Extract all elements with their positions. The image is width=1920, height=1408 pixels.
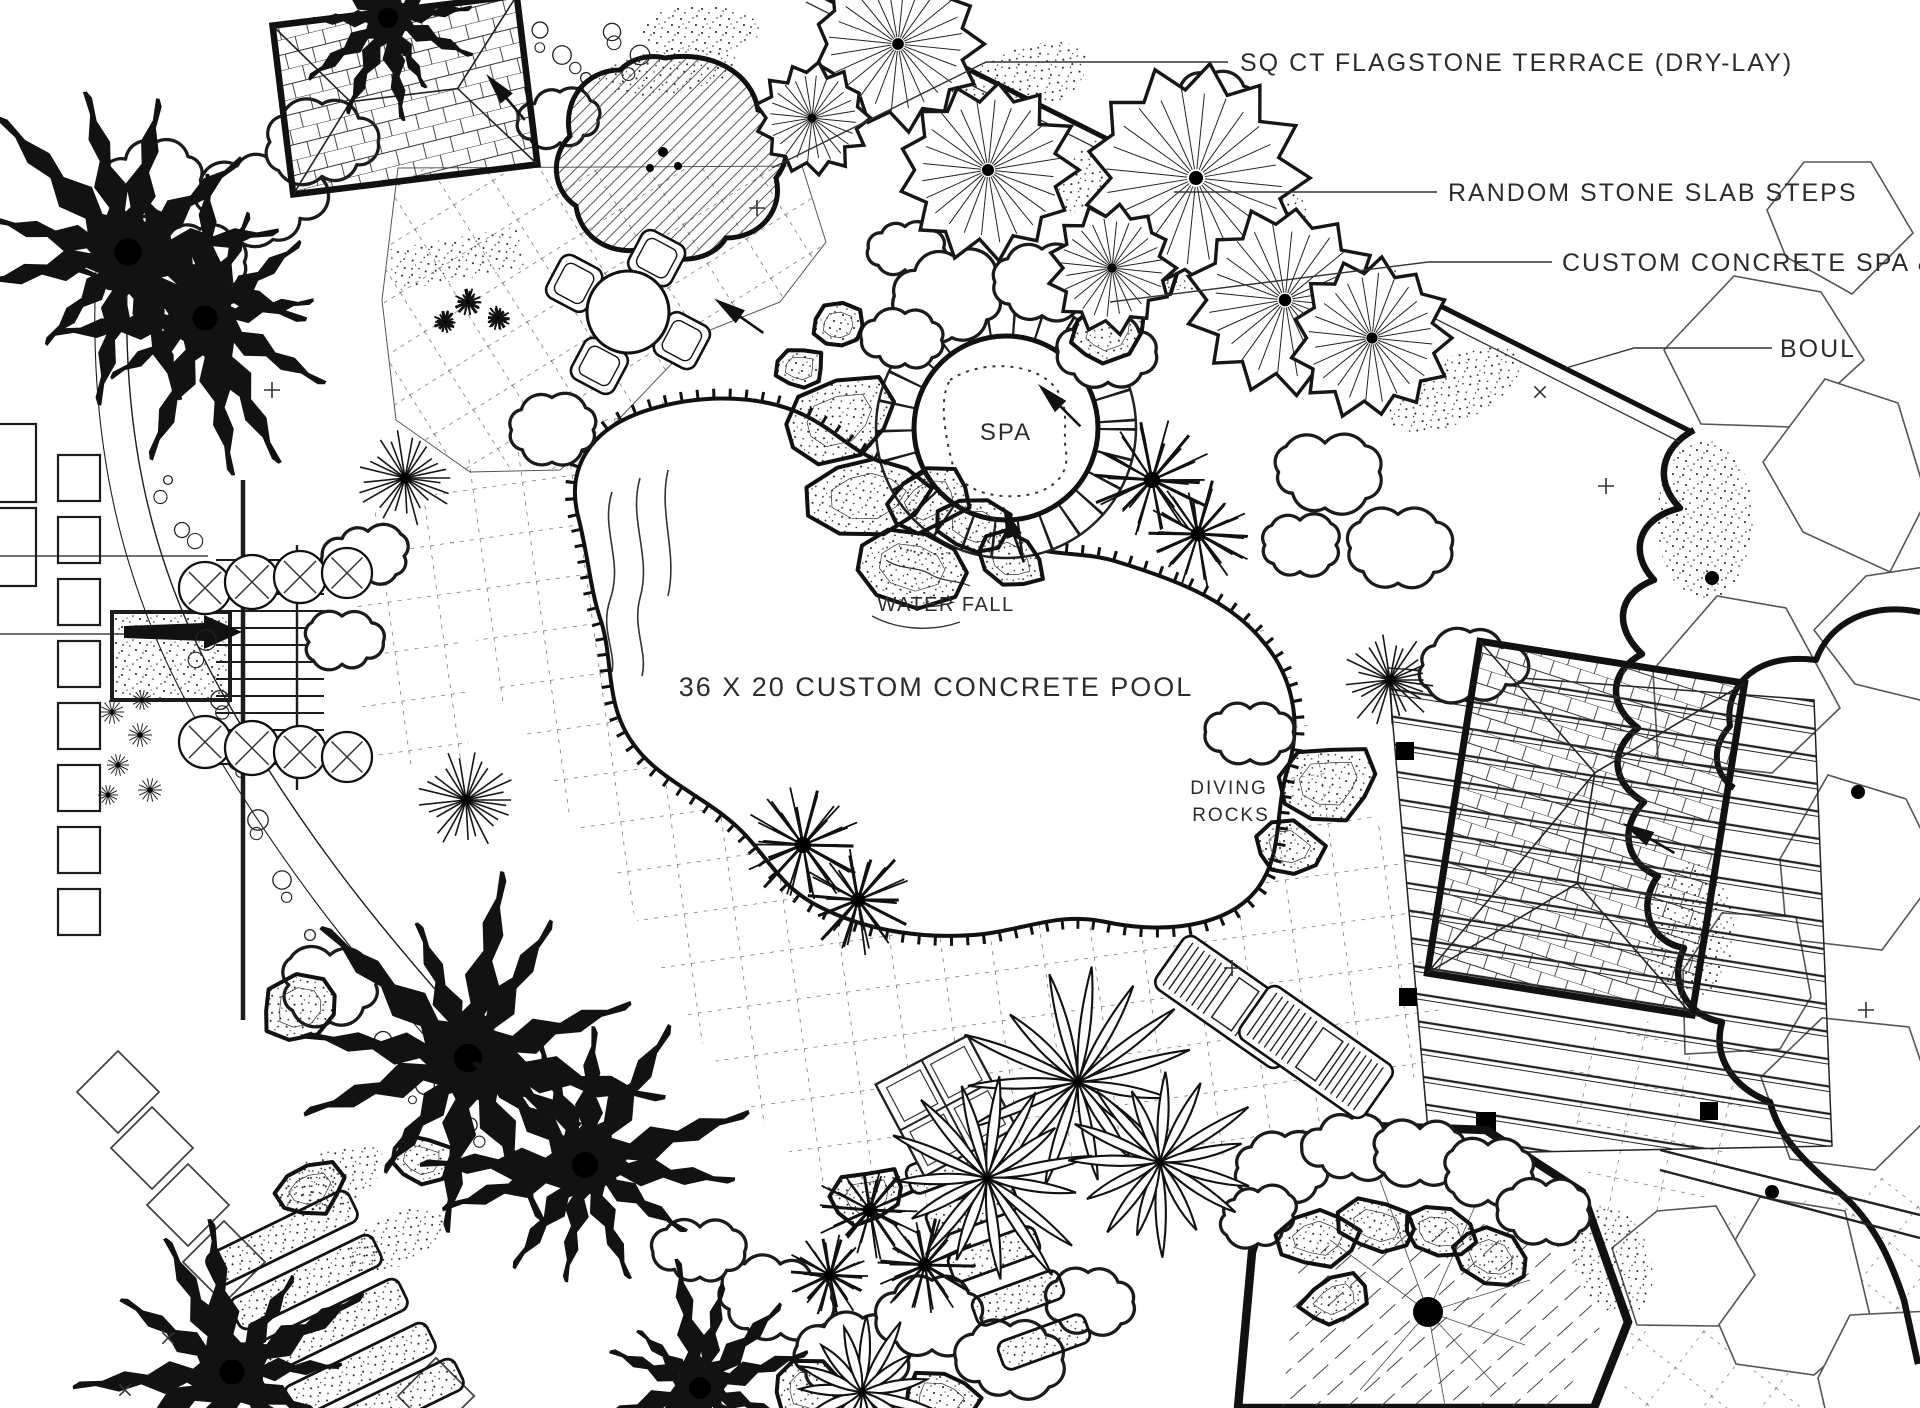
groundcover-dot [607, 36, 621, 50]
boxwood-ball [322, 548, 372, 598]
groundcover-dot [175, 523, 190, 538]
label-diving-1: DIVING [1190, 778, 1267, 799]
groundcover-dot [570, 62, 581, 73]
callout-stone-steps: RANDOM STONE SLAB STEPS [1448, 179, 1858, 207]
groundcover-plant [128, 723, 152, 746]
stone-slab [814, 303, 863, 346]
groundcover-dot [553, 46, 572, 65]
survey-mark [1858, 1002, 1874, 1018]
survey-mark [1529, 381, 1552, 404]
landscape-plan-canvas: SQ CT FLAGSTONE TERRACE (DRY-LAY) RANDOM… [0, 0, 1920, 1408]
gravel-patch [640, 6, 760, 54]
boxwood-ball [179, 562, 231, 614]
plan-drawing: SQ CT FLAGSTONE TERRACE (DRY-LAY) RANDOM… [0, 0, 1920, 1408]
label-pool: 36 X 20 CUSTOM CONCRETE POOL [679, 672, 1194, 702]
hatched-canopy-tree [556, 56, 787, 259]
shrub-cloud [1275, 434, 1381, 514]
groundcover-plant [100, 700, 124, 723]
boxwood-ball [225, 555, 279, 609]
groundcover-dot [250, 827, 262, 839]
boxwood-ball [322, 732, 372, 782]
groundcover-dot [603, 23, 620, 40]
boxwood-ball [179, 716, 231, 768]
shrub-cloud [1347, 508, 1452, 588]
groundcover-dot [164, 476, 173, 485]
groundcover-dot [535, 43, 545, 53]
label-diving-2: ROCKS [1192, 805, 1270, 826]
planter-boxes [0, 424, 100, 935]
survey-mark [264, 382, 280, 398]
shrub-cloud [1263, 514, 1340, 576]
groundcover-dot [282, 892, 292, 902]
label-waterfall: WATER FALL [877, 594, 1014, 616]
callout-boulders: BOUL [1780, 335, 1856, 363]
pavilion-deck-roof [1427, 641, 1744, 1015]
survey-mark [1598, 478, 1614, 494]
gravel-patch [1657, 440, 1753, 600]
ornamental-grass [419, 752, 512, 843]
groundcover-dot [409, 1096, 417, 1104]
callout-flagstone-terrace: SQ CT FLAGSTONE TERRACE (DRY-LAY) [1240, 49, 1793, 77]
shrub-cloud [861, 309, 943, 368]
shrub-cloud [652, 1220, 747, 1281]
boulder-dot [1851, 785, 1865, 799]
groundcover-plant [107, 754, 129, 775]
groundcover-dot [305, 930, 316, 941]
boxwood-ball [274, 726, 326, 778]
callout-spa-waterfall: CUSTOM CONCRETE SPA & WAT [1562, 249, 1920, 277]
groundcover-dot [532, 22, 548, 38]
stone-slab [776, 350, 822, 388]
boxwood-ball [225, 721, 279, 775]
groundcover-dot [474, 1136, 485, 1147]
groundcover-dot [154, 490, 167, 503]
label-spa: SPA [980, 419, 1032, 446]
groundcover-plant [138, 778, 162, 801]
groundcover-dot [187, 534, 202, 549]
boxwood-ball [274, 551, 326, 603]
groundcover-dot [273, 871, 291, 889]
